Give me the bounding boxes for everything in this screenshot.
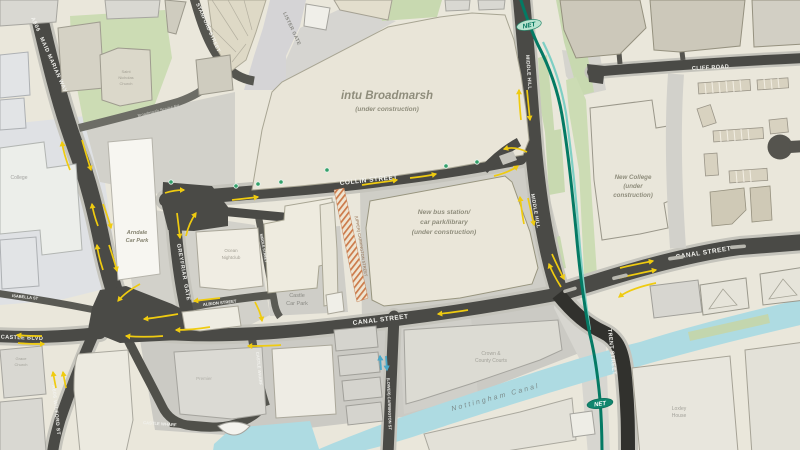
svg-text:intu Broadmarsh: intu Broadmarsh: [341, 90, 433, 102]
svg-text:construction): construction): [613, 192, 653, 199]
svg-text:County Courts: County Courts: [475, 358, 507, 364]
svg-text:House: House: [672, 413, 687, 419]
svg-text:Car Park: Car Park: [126, 238, 150, 244]
svg-text:New College: New College: [615, 174, 652, 181]
svg-text:Church: Church: [120, 81, 133, 86]
svg-text:New bus station/: New bus station/: [418, 209, 472, 216]
svg-text:(under construction): (under construction): [355, 106, 419, 113]
svg-text:Saint: Saint: [121, 69, 131, 74]
svg-text:Premier: Premier: [196, 376, 212, 381]
svg-text:Nightclub: Nightclub: [222, 255, 241, 260]
svg-text:Car Park: Car Park: [286, 301, 308, 307]
svg-text:Grace: Grace: [16, 356, 28, 361]
svg-text:(under construction): (under construction): [412, 229, 476, 236]
svg-text:Nicholas: Nicholas: [118, 75, 133, 80]
svg-text:car park/library: car park/library: [420, 219, 468, 226]
svg-text:Ocean: Ocean: [224, 248, 238, 253]
svg-text:College: College: [11, 175, 28, 181]
svg-text:Arndale: Arndale: [126, 230, 147, 236]
svg-text:Castle: Castle: [289, 293, 305, 299]
svg-text:(under: (under: [623, 183, 643, 190]
svg-text:Church: Church: [15, 362, 28, 367]
svg-text:Loxley: Loxley: [672, 406, 687, 412]
svg-text:Crown &: Crown &: [481, 351, 501, 357]
